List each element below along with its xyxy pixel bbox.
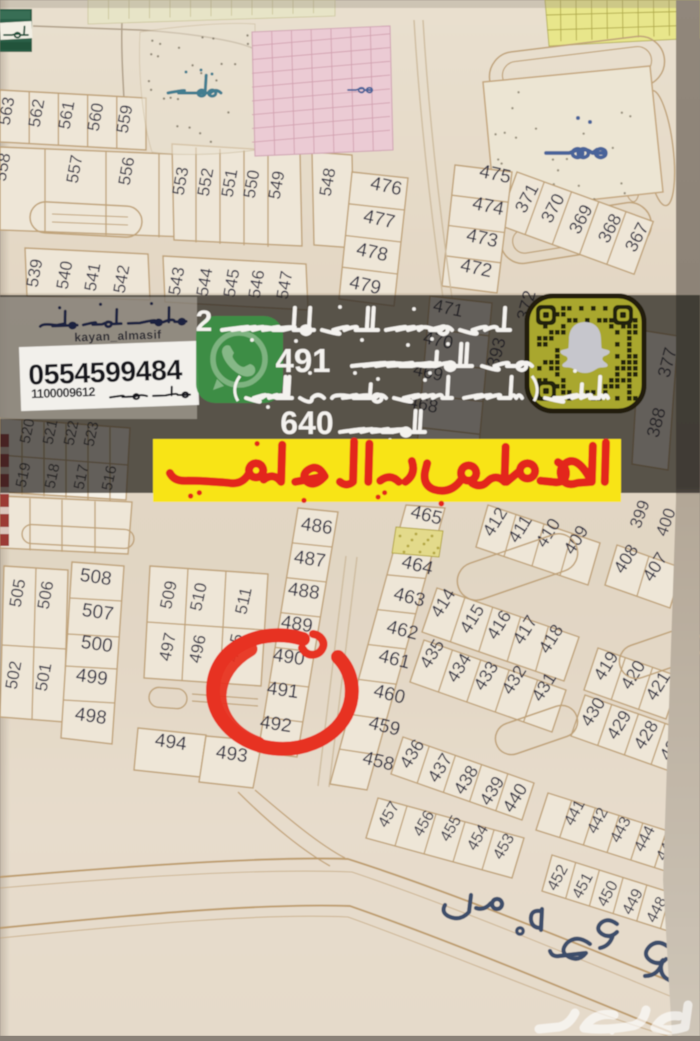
svg-text:640: 640 — [280, 405, 333, 441]
svg-text:1100009612: 1100009612 — [31, 385, 96, 401]
svg-text:491: 491 — [275, 342, 330, 379]
svg-text:2: 2 — [196, 305, 213, 338]
